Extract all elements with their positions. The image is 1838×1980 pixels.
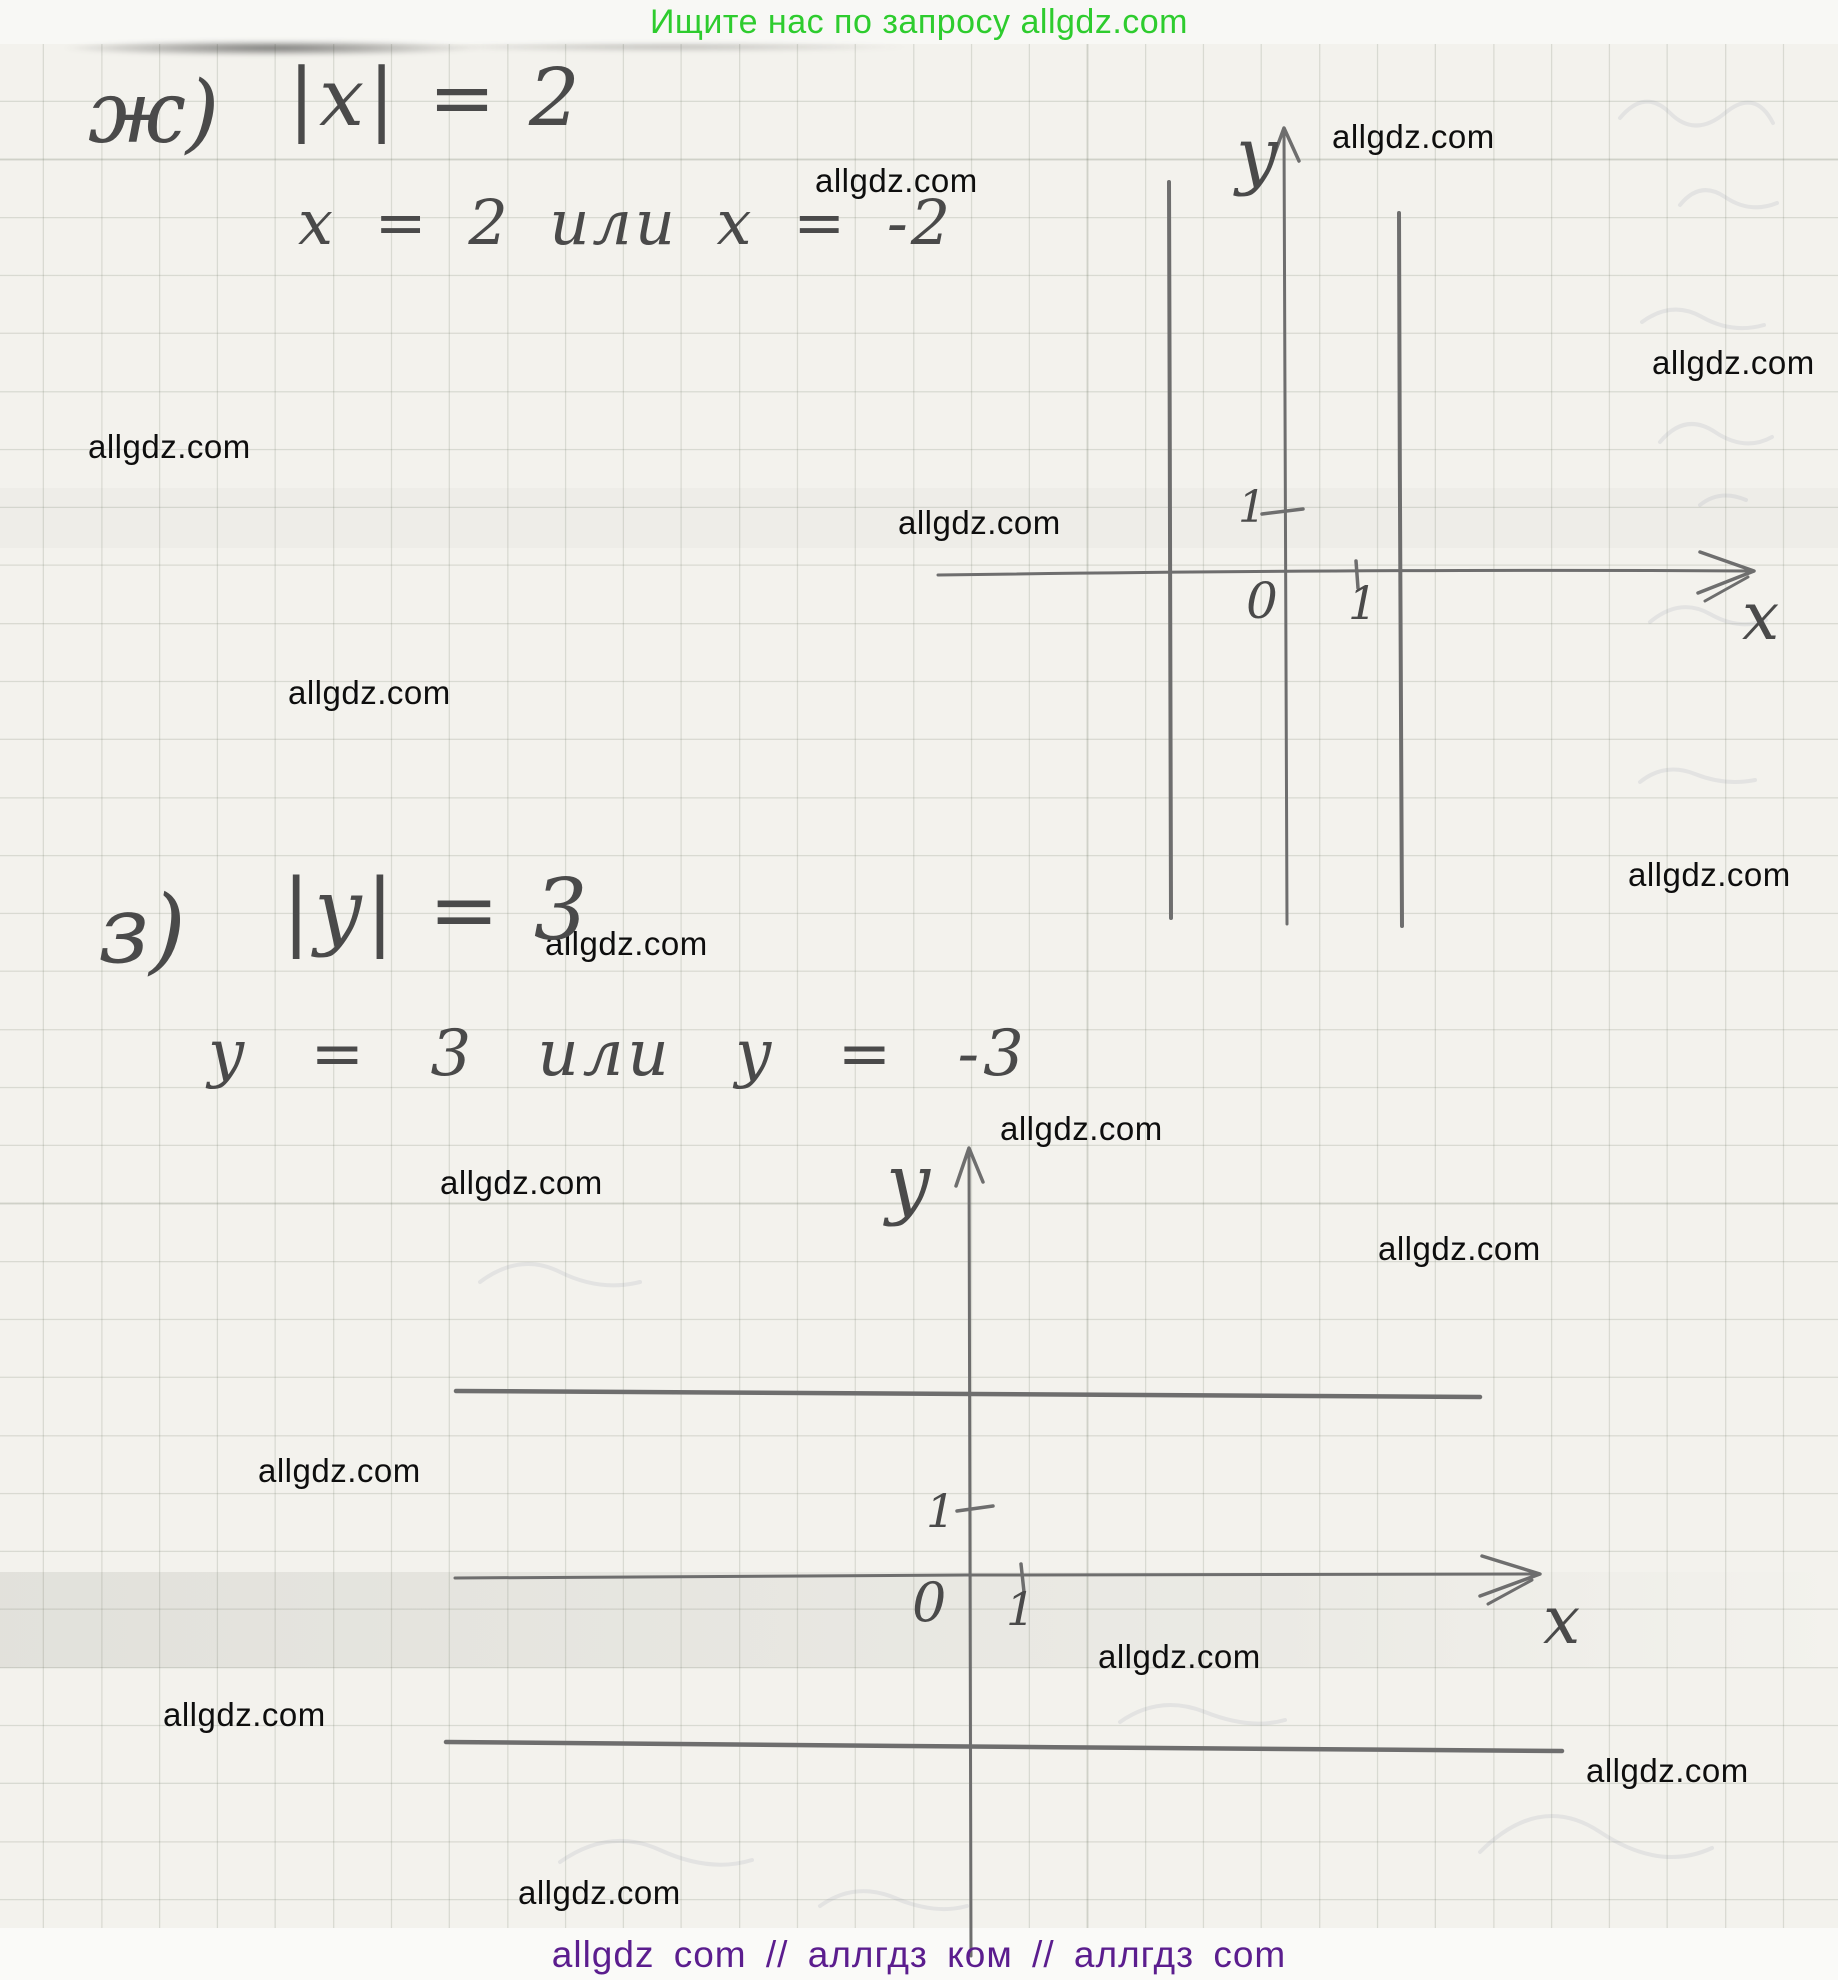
problem1-label: ж) [88,70,219,156]
plane1-x-tick-label: 1 [1348,580,1377,626]
plane2-line-y-plus-3 [456,1391,1480,1397]
problem1-solution: x = 2 или x = -2 [298,192,953,254]
notebook-page-scan: Ищите нас по запросу allgdz.com allgdz.c… [0,0,1838,1980]
plane2-x-axis-label: x [1543,1588,1580,1654]
plane2-line-y-minus-3 [446,1742,1562,1751]
pencil-drawing-layer [0,0,1838,1980]
problem1-equation: |x| = 2 [288,58,584,138]
plane2-x-axis [455,1556,1540,1604]
footer-text: allgdz com // аллгдз ком // аллгдз com [0,1934,1838,1976]
plane1-y-axis [1270,128,1299,924]
plane2-x-arrow-icon [1480,1556,1540,1596]
plane-1 [938,128,1754,926]
plane2-x-tick-label: 1 [1006,1586,1035,1632]
plane1-line-x-plus-2 [1399,213,1402,926]
plane-2 [446,1148,1562,1956]
plane2-tick-y1 [957,1506,993,1511]
problem2-equation: |y| = 3 [282,868,591,952]
plane1-origin-label: 0 [1246,576,1278,626]
bleed-through-marks [480,102,1777,1909]
plane2-y-tick-label: 1 [926,1488,955,1534]
plane2-origin-label: 0 [912,1576,946,1630]
plane2-y-axis [956,1148,983,1956]
plane1-x-axis [938,552,1754,601]
problem2-solution: y = 3 или y = -3 [208,1022,1028,1086]
plane1-y-axis-label: y [1236,118,1278,192]
plane1-x-axis-label: x [1742,584,1779,650]
plane2-y-axis-label: y [886,1144,930,1222]
plane1-tick-y1 [1262,509,1303,514]
plane1-y-tick-label: 1 [1238,486,1266,530]
plane1-line-x-minus-2 [1169,182,1171,918]
problem2-label: з) [98,884,186,978]
